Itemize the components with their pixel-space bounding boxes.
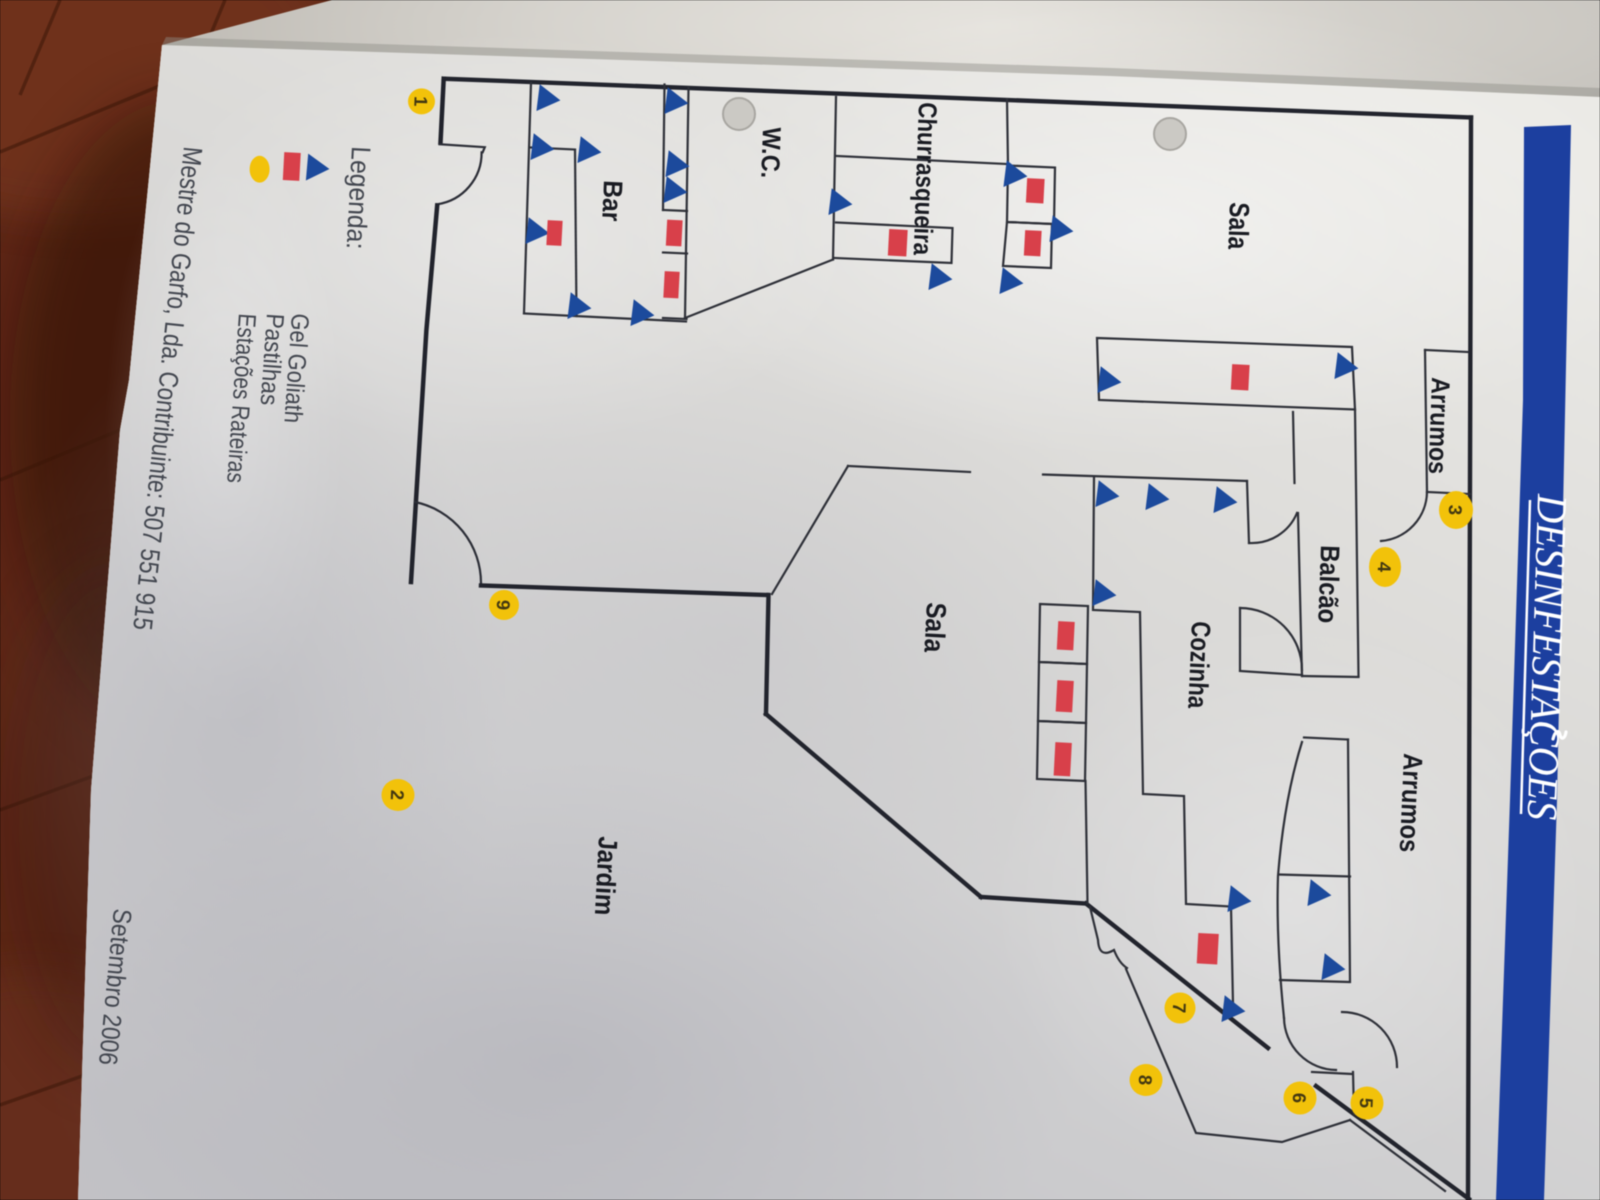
svg-text:6: 6 (1289, 1092, 1310, 1103)
svg-text:Sala: Sala (918, 602, 953, 654)
svg-text:W.C.: W.C. (755, 127, 785, 179)
svg-text:Legenda:: Legenda: (340, 146, 375, 250)
svg-text:Sala: Sala (1222, 202, 1254, 251)
svg-text:1: 1 (410, 96, 431, 107)
svg-text:Churrasqueira: Churrasqueira (907, 102, 941, 256)
svg-text:Cozinha: Cozinha (1182, 621, 1215, 709)
svg-text:2: 2 (387, 789, 408, 800)
svg-text:3: 3 (1445, 504, 1466, 515)
svg-text:9: 9 (493, 599, 514, 610)
svg-text:Balcão: Balcão (1312, 545, 1344, 624)
svg-text:7: 7 (1169, 1002, 1190, 1013)
svg-text:4: 4 (1374, 561, 1395, 573)
svg-text:Bar: Bar (596, 180, 627, 222)
svg-text:Arrumos: Arrumos (1393, 753, 1427, 853)
svg-text:Arrumos: Arrumos (1422, 377, 1454, 475)
svg-text:5: 5 (1356, 1097, 1377, 1108)
svg-text:Jardim: Jardim (589, 836, 623, 916)
svg-text:8: 8 (1135, 1074, 1156, 1085)
